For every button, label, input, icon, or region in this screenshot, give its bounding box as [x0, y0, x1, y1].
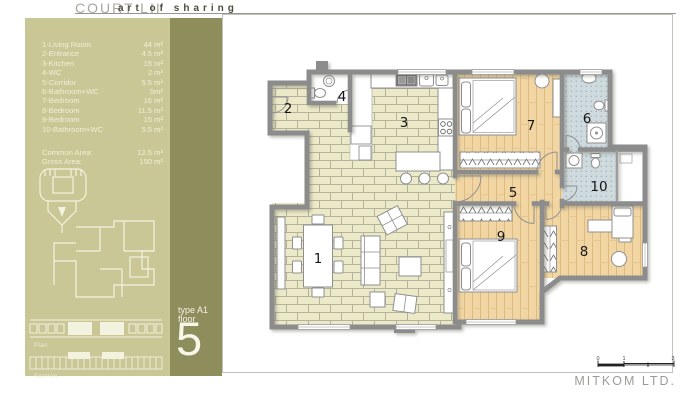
- bed-single-room8: [612, 206, 633, 238]
- legend-name: 10-Bathroom+WC: [42, 125, 103, 134]
- legend-row: 6-Bathroom+WC5m²: [42, 87, 163, 96]
- legend-area: 4.5 m²: [141, 49, 163, 58]
- section-thumb-label: Section: [34, 374, 58, 380]
- bed-double-room7: [459, 78, 516, 135]
- room-label-kitchen: 3: [400, 115, 409, 131]
- legend-row: 3-Kitchen15 m²: [42, 59, 163, 68]
- room-label-bedroom9: 9: [497, 229, 506, 245]
- legend-row: 5-Corridor5.5 m²: [42, 78, 163, 87]
- bar-stools: [401, 173, 449, 184]
- legend-name: 4-WC: [42, 68, 61, 77]
- room-label-corridor: 5: [509, 185, 518, 201]
- building-plan-strip-thumbnail: [28, 316, 164, 342]
- room-label-bathroom10: 10: [590, 179, 607, 195]
- legend-area: 5.5 m²: [141, 125, 163, 134]
- legend-area: 5m²: [150, 87, 163, 96]
- legend-name: 2-Entrance: [42, 49, 79, 58]
- floor-number: 5: [176, 315, 202, 362]
- sidebar-panel: 1-Living Room44 m² 2-Entrance4.5 m² 3-Ki…: [25, 18, 170, 376]
- legend-row: 4-WC2 m²: [42, 68, 163, 77]
- legend-row: 9-Bedroom15 m²: [42, 115, 163, 124]
- legend-area: 16 m²: [144, 96, 163, 105]
- legend-area: 2 m²: [148, 68, 163, 77]
- plan-thumb-label: Plan: [34, 343, 48, 349]
- legend-area: 5.5 m²: [141, 78, 163, 87]
- sidebar-accent-column: type A1 floor 5: [170, 18, 222, 376]
- bed-double-room9: [459, 239, 517, 292]
- room-label-living: 1: [314, 251, 323, 267]
- legend-name: 7-Bedroom: [42, 96, 80, 105]
- legend-row: 10-Bathroom+WC5.5 m²: [42, 125, 163, 134]
- scale-bar: 0 1 3: [594, 353, 678, 371]
- room-label-bedroom7: 7: [527, 118, 536, 134]
- legend-summary-row: Common Area:12.5 m²: [42, 148, 163, 157]
- room-label-wc: 4: [338, 89, 347, 105]
- legend-row: 8-Bedroom11.5 m²: [42, 106, 163, 115]
- legend-row: 1-Living Room44 m²: [42, 40, 163, 49]
- legend-area: 15 m²: [144, 115, 163, 124]
- page: COURT LII art of sharing 1-Living Room44…: [0, 0, 700, 400]
- legend-area: 15 m²: [144, 59, 163, 68]
- legend-name: 8-Bedroom: [42, 106, 80, 115]
- legend-area: 11.5 m²: [138, 106, 163, 115]
- legend-name: 1-Living Room: [42, 40, 91, 49]
- legend-area: 44 m²: [144, 40, 163, 49]
- closet-room9: [459, 205, 512, 221]
- floor-plan: 1 2 3 4 5 6 7 8 9 10: [252, 50, 672, 350]
- legend-name: Common Area:: [42, 148, 93, 157]
- closet-room8: [544, 226, 557, 272]
- building-section-thumbnail: [28, 351, 164, 373]
- table-room8: [612, 252, 627, 267]
- closet-room7: [460, 152, 540, 168]
- room-label-bathroom6: 6: [583, 111, 592, 127]
- legend-name: 3-Kitchen: [42, 59, 74, 68]
- plant-room7: [535, 74, 549, 88]
- room-label-entrance: 2: [284, 101, 293, 117]
- legend-name: 5-Corridor: [42, 78, 76, 87]
- room-legend: 1-Living Room44 m² 2-Entrance4.5 m² 3-Ki…: [42, 40, 163, 167]
- legend-name: 9-Bedroom: [42, 115, 80, 124]
- room-label-bedroom8: 8: [580, 244, 589, 260]
- company-name: MITKOM LTD.: [574, 374, 676, 388]
- legend-row: 7-Bedroom16 m²: [42, 96, 163, 105]
- key-plan-thumbnail: [28, 165, 164, 301]
- legend-area: 12.5 m²: [137, 148, 163, 157]
- legend-name: 6-Bathroom+WC: [42, 87, 99, 96]
- legend-row: 2-Entrance4.5 m²: [42, 49, 163, 58]
